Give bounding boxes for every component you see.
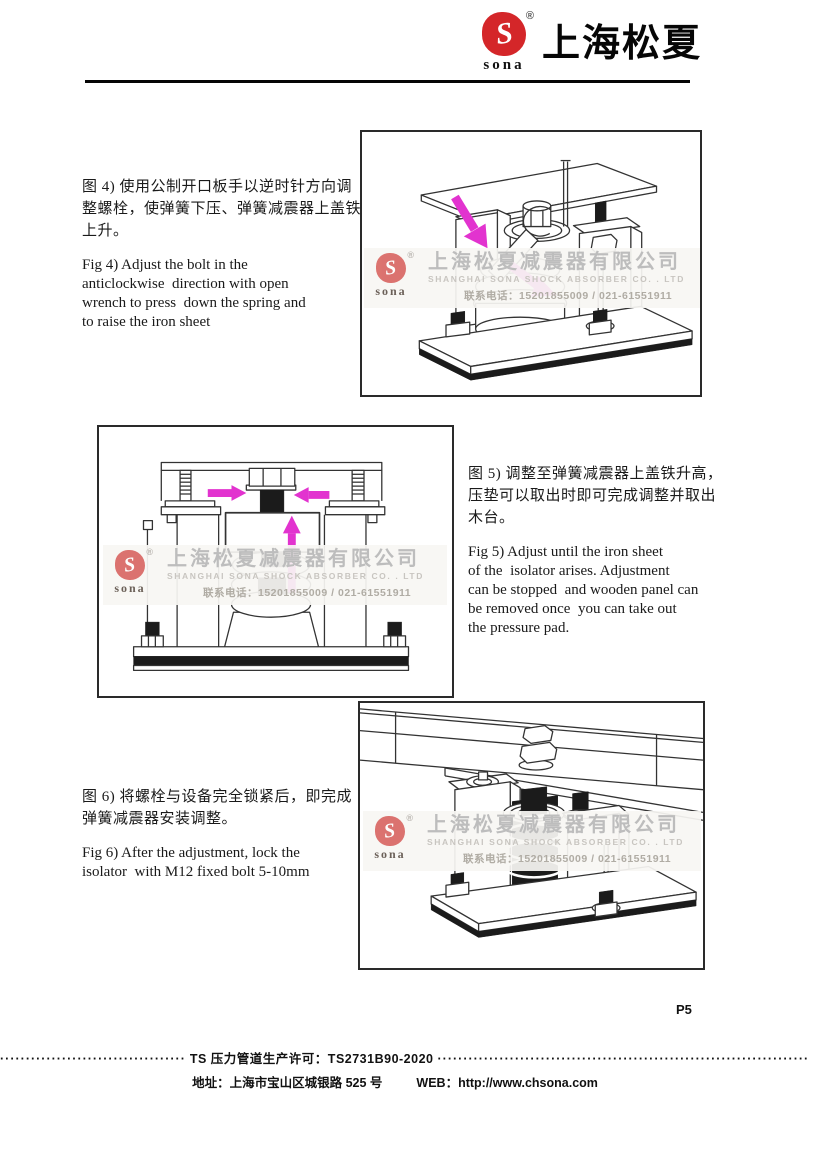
fig6-caption: 图 6) 将螺栓与设备完全锁紧后，即完成 弹簧减震器安装调整。 Fig 6) A…	[82, 786, 382, 882]
watermark-company-cn: 上海松夏减震器有限公司	[427, 814, 684, 836]
watermark: S ® sona 上海松夏减震器有限公司 SHANGHAI SONA SHOCK…	[363, 811, 701, 871]
caption-line: 压垫可以取出时即可完成调整并取出	[468, 485, 768, 507]
watermark-company-en: SHANGHAI SONA SHOCK ABSORBER CO. . LTD	[428, 274, 685, 284]
watermark: S ® sona 上海松夏减震器有限公司 SHANGHAI SONA SHOCK…	[103, 545, 447, 605]
watermark-company-cn: 上海松夏减震器有限公司	[167, 548, 424, 570]
fig4-caption: 图 4) 使用公制开口板手以逆时针方向调 整螺栓，使弹簧下压、弹簧减震器上盖铁 …	[82, 176, 382, 332]
page-footer: ····································TS 压…	[0, 1048, 790, 1091]
caption-line: 图 4) 使用公制开口板手以逆时针方向调	[82, 176, 382, 198]
brand-name: 上海松夏	[542, 12, 702, 66]
watermark-company-en: SHANGHAI SONA SHOCK ABSORBER CO. . LTD	[427, 837, 684, 847]
caption-line: 图 5) 调整至弹簧减震器上盖铁升高，	[468, 463, 768, 485]
footer-contact-line: 地址：上海市宝山区城银路 525 号 WEB：http://www.chsona…	[0, 1072, 790, 1091]
watermark-company-en: SHANGHAI SONA SHOCK ABSORBER CO. . LTD	[167, 571, 424, 581]
caption-line: Fig 4) Adjust the bolt in the	[82, 256, 382, 275]
sona-logo-watermark: S ® sona	[364, 251, 418, 299]
sona-logo-icon: S	[115, 550, 145, 580]
caption-line: isolator with M12 fixed bolt 5-10mm	[82, 863, 382, 882]
caption-line: to raise the iron sheet	[82, 313, 382, 332]
sona-logo-watermark: S ® sona	[103, 548, 157, 596]
watermark-company-cn: 上海松夏减震器有限公司	[428, 251, 685, 273]
caption-line: 上升。	[82, 220, 382, 242]
sona-logo-text: sona	[476, 57, 532, 74]
registered-trademark-icon: ®	[146, 547, 153, 557]
caption-line: anticlockwise direction with open	[82, 275, 382, 294]
footer-web: WEB：http://www.chsona.com	[416, 1072, 598, 1091]
brand-header: S ® sona 上海松夏	[476, 12, 702, 74]
sona-logo-watermark: S ® sona	[363, 814, 417, 862]
registered-trademark-icon: ®	[406, 813, 413, 823]
caption-line: 木台。	[468, 507, 768, 529]
page-number: P5	[676, 1002, 692, 1017]
registered-trademark-icon: ®	[526, 10, 534, 22]
footer-license-line: ····································TS 压…	[0, 1048, 790, 1067]
caption-line: 整螺栓，使弹簧下压、弹簧减震器上盖铁	[82, 198, 382, 220]
watermark-phone: 联系电话：15201855009 / 021-61551911	[427, 851, 684, 866]
caption-line: 弹簧减震器安装调整。	[82, 808, 382, 830]
sona-logo-icon: S	[482, 12, 526, 56]
caption-line: can be stopped and wooden panel can	[468, 581, 768, 600]
sona-logo-icon: S	[376, 253, 406, 283]
footer-dots: ········································…	[438, 1052, 810, 1066]
footer-license: TS 压力管道生产许可：TS2731B90-2020	[190, 1052, 434, 1066]
footer-address: 地址：上海市宝山区城银路 525 号	[192, 1072, 382, 1091]
caption-line: wrench to press down the spring and	[82, 294, 382, 313]
sona-logo-icon: S	[375, 816, 405, 846]
header-rule	[85, 80, 690, 83]
figure-5-isolator-front: S ® sona 上海松夏减震器有限公司 SHANGHAI SONA SHOCK…	[97, 425, 454, 698]
watermark: S ® sona 上海松夏减震器有限公司 SHANGHAI SONA SHOCK…	[364, 248, 700, 308]
caption-line: 图 6) 将螺栓与设备完全锁紧后，即完成	[82, 786, 382, 808]
registered-trademark-icon: ®	[407, 250, 414, 260]
caption-line: Fig 5) Adjust until the iron sheet	[468, 543, 768, 562]
fig5-caption: 图 5) 调整至弹簧减震器上盖铁升高， 压垫可以取出时即可完成调整并取出 木台。…	[468, 463, 768, 638]
watermark-phone: 联系电话：15201855009 / 021-61551911	[167, 585, 424, 600]
figure-6-isolator-installed: S ® sona 上海松夏减震器有限公司 SHANGHAI SONA SHOCK…	[358, 701, 705, 970]
footer-dots: ····································	[0, 1052, 186, 1066]
sona-logo: S ® sona	[476, 12, 532, 74]
caption-line: be removed once you can take out	[468, 600, 768, 619]
document-page: S ® sona 上海松夏 图 4) 使用公制开口板手以逆时针方向调 整螺栓，使…	[0, 0, 813, 1149]
caption-line: the pressure pad.	[468, 619, 768, 638]
caption-line: Fig 6) After the adjustment, lock the	[82, 844, 382, 863]
watermark-phone: 联系电话：15201855009 / 021-61551911	[428, 288, 685, 303]
caption-line: of the isolator arises. Adjustment	[468, 562, 768, 581]
figure-4-isolator-isometric: S ® sona 上海松夏减震器有限公司 SHANGHAI SONA SHOCK…	[360, 130, 702, 397]
